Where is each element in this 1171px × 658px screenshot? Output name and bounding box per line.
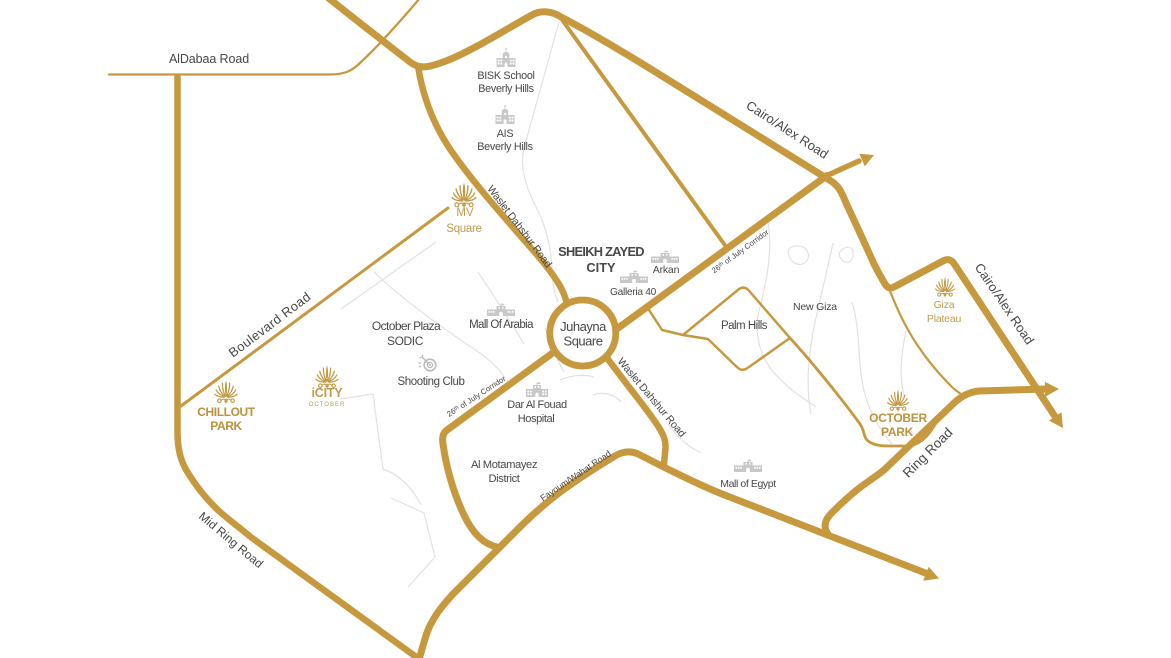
svg-text:BISK School: BISK School: [477, 70, 534, 82]
svg-text:CHILLOUT: CHILLOUT: [197, 405, 256, 419]
svg-text:Palm Hills: Palm Hills: [721, 320, 768, 332]
svg-text:Al Motamayez: Al Motamayez: [471, 459, 538, 471]
svg-text:PARK: PARK: [210, 419, 242, 433]
svg-text:Mall Of Arabia: Mall Of Arabia: [469, 319, 534, 331]
svg-text:Mall of Egypt: Mall of Egypt: [720, 478, 776, 490]
svg-text:Beverly Hills: Beverly Hills: [477, 141, 533, 153]
svg-text:Dar Al Fouad: Dar Al Fouad: [507, 399, 567, 411]
svg-text:PARK: PARK: [881, 425, 914, 439]
svg-text:OCTOBER: OCTOBER: [869, 411, 927, 425]
svg-text:Juhayna: Juhayna: [560, 319, 607, 334]
svg-text:CITY: CITY: [586, 260, 616, 275]
svg-text:Galleria 40: Galleria 40: [610, 287, 657, 298]
svg-text:AIS: AIS: [497, 128, 514, 140]
svg-text:OCTOBER: OCTOBER: [309, 402, 346, 408]
svg-text:Plateau: Plateau: [927, 313, 962, 325]
svg-text:iCITY: iCITY: [312, 386, 344, 400]
svg-text:New Giza: New Giza: [793, 301, 837, 313]
svg-text:SHEIKH ZAYED: SHEIKH ZAYED: [558, 244, 644, 259]
svg-text:Square: Square: [446, 223, 481, 235]
svg-text:Giza: Giza: [934, 299, 955, 311]
svg-text:Square: Square: [564, 334, 603, 349]
svg-text:Arkan: Arkan: [653, 264, 680, 276]
svg-text:Hospital: Hospital: [518, 413, 555, 425]
svg-text:Shooting Club: Shooting Club: [397, 376, 464, 388]
svg-text:AlDabaa Road: AlDabaa Road: [169, 52, 249, 66]
svg-text:October Plaza: October Plaza: [372, 319, 441, 333]
svg-text:MV: MV: [456, 207, 474, 219]
svg-text:District: District: [489, 473, 521, 485]
svg-text:SODIC: SODIC: [387, 334, 424, 348]
svg-text:Beverly Hills: Beverly Hills: [478, 83, 534, 95]
